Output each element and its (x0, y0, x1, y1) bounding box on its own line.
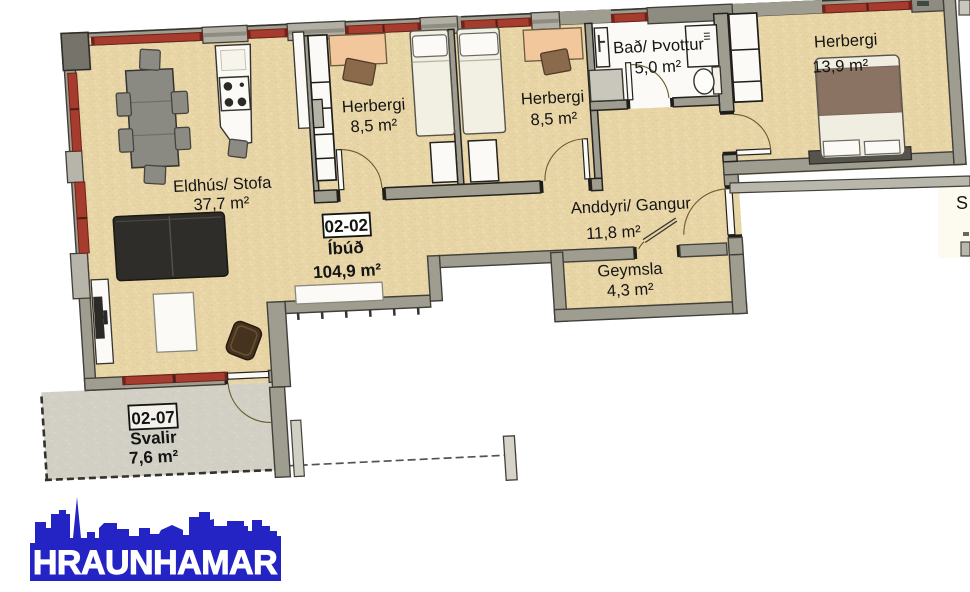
svg-text:Geymsla: Geymsla (597, 259, 664, 281)
svg-text:S: S (956, 193, 968, 213)
svg-text:Íbúð: Íbúð (327, 238, 364, 259)
svg-text:Herbergi: Herbergi (520, 87, 584, 109)
svg-text:Svalir: Svalir (130, 428, 178, 449)
svg-text:Herbergi: Herbergi (813, 30, 877, 52)
svg-text:8,5 m²: 8,5 m² (530, 108, 578, 129)
svg-text:02-07: 02-07 (131, 408, 176, 429)
svg-text:4,3 m²: 4,3 m² (606, 279, 654, 300)
svg-text:8,5 m²: 8,5 m² (350, 115, 398, 136)
svg-text:Herbergi: Herbergi (341, 95, 405, 117)
svg-text:5,0 m²: 5,0 m² (634, 56, 682, 77)
svg-text:13,9 m²: 13,9 m² (812, 55, 870, 76)
svg-text:Bað/ Þvottur: Bað/ Þvottur (613, 34, 705, 57)
svg-text:7,6 m²: 7,6 m² (129, 447, 180, 468)
svg-text:11,8 m²: 11,8 m² (586, 222, 642, 243)
svg-text:HRAUNHAMAR: HRAUNHAMAR (33, 544, 277, 582)
svg-text:104,9 m²: 104,9 m² (313, 260, 383, 282)
svg-text:37,7 m²: 37,7 m² (193, 193, 251, 214)
svg-text:02-02: 02-02 (324, 216, 369, 237)
